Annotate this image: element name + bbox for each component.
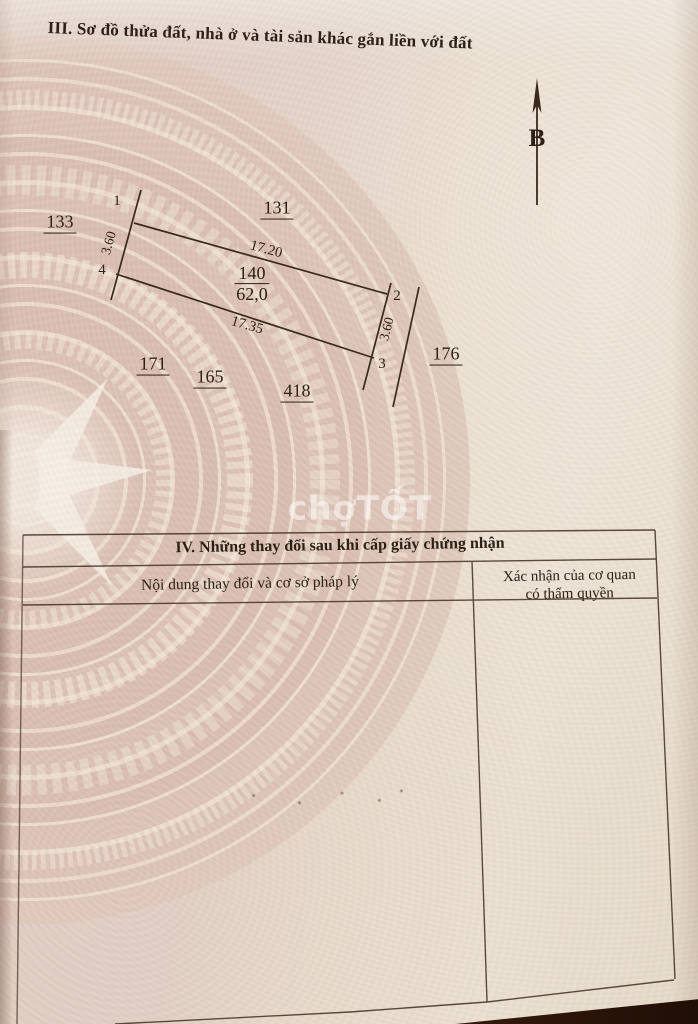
photo-page: III. Sơ đồ thửa đất, nhà ở và tài sản kh…	[0, 0, 698, 1024]
corner-label-4: 4	[98, 263, 106, 279]
table-column-divider	[472, 561, 487, 1002]
table-bottom-border	[115, 980, 674, 1024]
north-label: B	[529, 126, 546, 152]
neighbor-plot-165: 165	[194, 368, 227, 389]
corner-label-2: 2	[393, 289, 401, 305]
plot-number: 140	[235, 264, 270, 284]
column-header-authority: Xác nhận của cơ quan có thẩm quyền	[477, 565, 663, 604]
neighbor-plot-131: 131	[261, 199, 294, 220]
neighbor-plot-133: 133	[44, 213, 77, 234]
column-header-authority-line2: có thẩm quyền	[477, 583, 662, 604]
column-header-authority-line1: Xác nhận của cơ quan	[477, 565, 662, 586]
dongson-drum-pattern	[0, 35, 470, 925]
neighbor-plot-176: 176	[430, 345, 463, 366]
neighbor-plot-171: 171	[137, 355, 170, 376]
chotot-watermark: chợTỐT	[288, 489, 433, 528]
neighbor-plot-418: 418	[281, 382, 314, 403]
plot-area: 62,0	[235, 284, 270, 304]
plot-number-area: 140 62,0	[235, 264, 270, 304]
corner-label-3: 3	[378, 357, 386, 373]
corner-label-1: 1	[113, 194, 121, 210]
